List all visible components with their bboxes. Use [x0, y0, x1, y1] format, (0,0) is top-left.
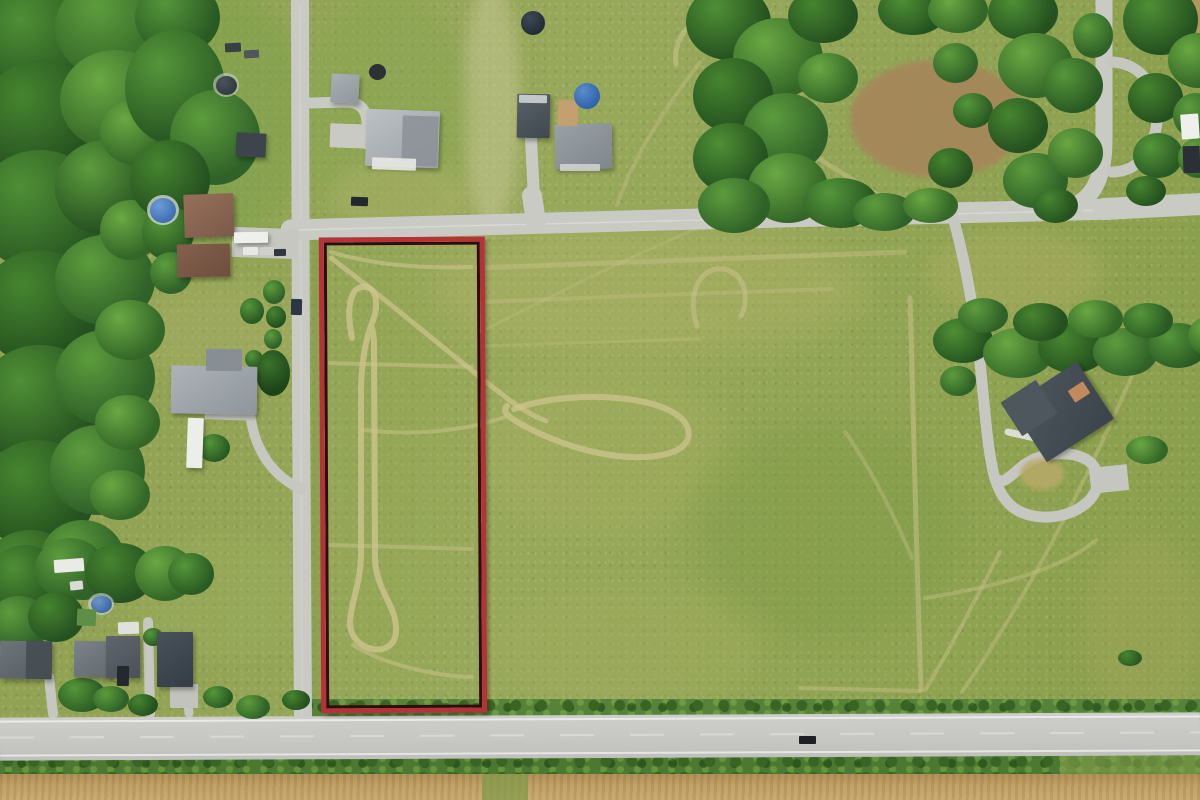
yard-bush-right — [1126, 436, 1168, 464]
car — [260, 247, 274, 255]
highway-edge-line — [0, 749, 1200, 756]
roadside-tree-bl — [236, 695, 270, 719]
mow-trail-curvy — [925, 540, 1096, 598]
canopy-topcenter — [698, 178, 770, 233]
shed-roof — [330, 73, 359, 103]
mow-trail-faint-diag — [480, 227, 700, 332]
trailer — [54, 558, 85, 573]
car — [243, 247, 258, 255]
conifer — [256, 350, 290, 396]
mow-trail-circle — [693, 269, 745, 326]
parking-pad-bl — [170, 684, 198, 708]
vehicle — [225, 43, 241, 53]
house-roof-brown — [183, 193, 234, 238]
clearing-tree — [928, 148, 973, 188]
trees-right-of-road — [1133, 133, 1183, 178]
car-white — [1180, 113, 1200, 139]
house-roof — [555, 124, 613, 170]
roadside-tree-bl — [93, 686, 129, 712]
house-roof — [171, 365, 258, 414]
pool — [574, 83, 600, 109]
mow-trail-long-vert — [910, 298, 921, 690]
forest-blob — [95, 395, 160, 450]
house-roof-wing — [206, 349, 242, 372]
house-roof-dark — [157, 632, 193, 687]
forest-bottomleft — [168, 553, 214, 595]
mow-trail-field-h1 — [478, 252, 905, 268]
loop-island-tuft — [1020, 458, 1064, 490]
yard-bush-right — [940, 366, 976, 396]
pool-deck-tan — [558, 100, 579, 127]
canopy-topcenter — [903, 188, 958, 223]
tree-band-right — [1068, 300, 1123, 338]
tree-band-right — [1013, 303, 1068, 341]
house-gable-white — [519, 95, 547, 103]
mow-trail-field-loop — [505, 397, 689, 457]
roadside-tree-bl — [128, 694, 158, 716]
carport-roof — [235, 132, 266, 158]
green-tarp — [77, 609, 97, 627]
driveway-bl-a — [49, 677, 53, 714]
car — [274, 249, 286, 256]
car-on-highway — [799, 736, 816, 744]
hedge-bush-row — [263, 280, 285, 304]
highway-edge-line — [0, 715, 1200, 722]
house-roof-brown — [177, 244, 231, 278]
pool-dark — [216, 76, 237, 95]
canopy-topright — [988, 98, 1048, 153]
mow-trail-short-diag — [845, 432, 912, 558]
forest-blob — [90, 470, 150, 520]
hedge-bush-row — [266, 306, 286, 328]
mow-trail-field-h3 — [478, 339, 700, 346]
mow-trail-hook-diag2 — [617, 62, 700, 205]
canopy-topright — [1033, 188, 1078, 223]
truck-cap — [70, 580, 84, 590]
hedge-lighter-right — [1060, 756, 1200, 774]
hedge-bush-row — [264, 329, 282, 349]
trees-right-of-road — [1126, 176, 1166, 206]
camper — [118, 622, 139, 635]
mow-trail-v-left — [925, 552, 1000, 690]
driveway-house3-apron — [532, 196, 536, 222]
forest-blob — [95, 300, 165, 360]
car-on-road — [291, 299, 302, 315]
canopy-topright — [1048, 128, 1103, 178]
rv-camper — [186, 418, 204, 469]
house-porch — [372, 157, 416, 171]
canopy-topcenter — [798, 53, 858, 103]
mow-trail-base — [800, 688, 920, 691]
roadside-tree-bl — [203, 686, 233, 708]
house-porch — [560, 164, 600, 171]
highway-road — [0, 712, 1200, 760]
tree-band-right — [958, 298, 1008, 333]
rv-trailer — [234, 232, 268, 244]
fire-pit — [369, 64, 386, 80]
mow-trail-field-h2 — [478, 289, 832, 302]
aerial-photo — [0, 0, 1200, 800]
clearing-tree — [953, 93, 993, 128]
vehicle — [244, 50, 259, 59]
hedge-bush-row — [240, 298, 264, 324]
car-dark — [1183, 146, 1200, 174]
canopy-topright — [1073, 13, 1113, 58]
car — [117, 666, 129, 686]
trampoline — [521, 11, 545, 35]
clearing-tree — [933, 43, 978, 83]
hedge-dot-se — [1118, 650, 1142, 666]
forest-bottomleft — [28, 592, 84, 642]
plow-green-tuft — [482, 774, 528, 800]
house-roof-half — [26, 641, 53, 679]
property-boundary-outline — [319, 237, 487, 714]
car-in-driveway — [351, 197, 368, 207]
canopy-topright — [1043, 58, 1103, 113]
pool — [150, 198, 176, 223]
tree-band-right — [1123, 303, 1173, 338]
roadside-tree-bl — [282, 690, 310, 710]
parking-pad-right-house — [1089, 464, 1130, 494]
highway-center-line — [0, 731, 1200, 738]
